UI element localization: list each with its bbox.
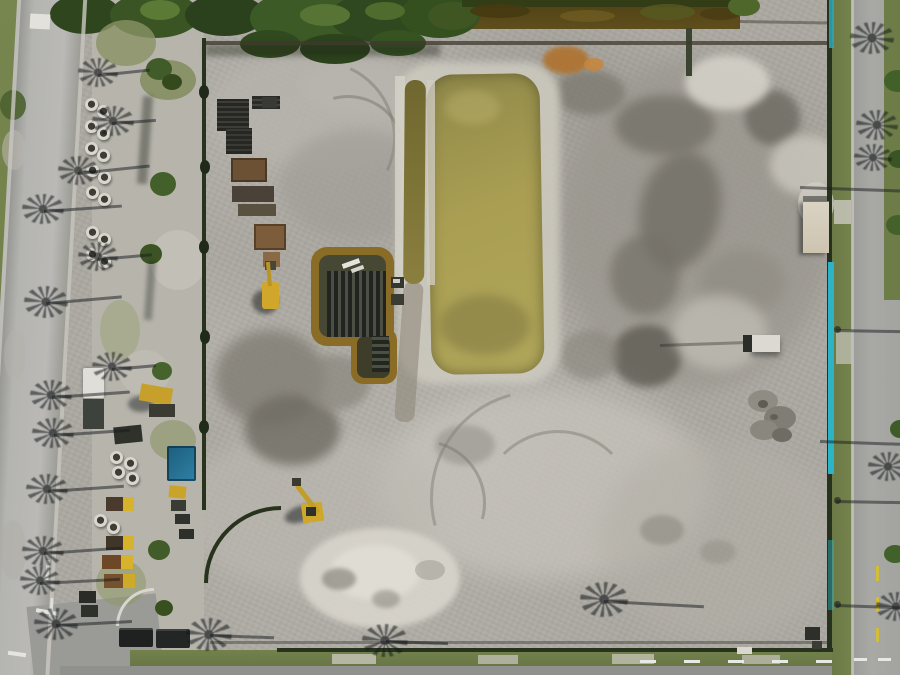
tree-canopy-highlight xyxy=(365,2,405,20)
silt-fence-cyan xyxy=(829,0,834,48)
parked-vehicle-top-left xyxy=(30,13,51,29)
concrete-pipe xyxy=(98,171,111,184)
sidewalk-patch xyxy=(332,654,376,664)
dirt-edge-line-top-right xyxy=(740,20,828,25)
concrete-pipe xyxy=(85,98,98,111)
dump-truck-cab xyxy=(123,536,134,550)
dump-truck-cab xyxy=(123,574,135,588)
concrete-pipe xyxy=(86,186,99,199)
channel-berm xyxy=(427,80,435,285)
road-dash xyxy=(640,660,656,663)
verge-sand-patch xyxy=(2,130,26,170)
pallet-stack xyxy=(232,186,274,202)
fence-shrub xyxy=(199,420,209,434)
yellow-center-dash xyxy=(876,628,879,642)
parked-truck-trailer xyxy=(83,399,104,429)
concrete-pipe xyxy=(94,514,107,527)
gravel-speckle xyxy=(758,400,768,408)
dump-truck-cab xyxy=(121,555,133,569)
strip-tree xyxy=(148,540,170,560)
pallet-stack xyxy=(238,204,276,216)
palm-shadow xyxy=(850,22,894,54)
foundation-formwork-small xyxy=(372,336,389,372)
site-top-boundary-line xyxy=(205,41,833,45)
palm-shadow xyxy=(868,452,900,481)
pallet-stack xyxy=(231,158,267,182)
equipment-dark xyxy=(171,500,186,511)
tree-canopy-highlight xyxy=(300,4,350,26)
road-dash xyxy=(878,658,891,661)
road-dash xyxy=(854,658,867,661)
dark-soil-patch xyxy=(555,70,625,115)
canal-algae-patch xyxy=(640,4,695,20)
sand-mound xyxy=(672,295,767,370)
bottom-road xyxy=(60,666,900,675)
stockpile-shadow-spot xyxy=(372,590,400,608)
excavator-bucket xyxy=(292,478,301,486)
dark-object-corner xyxy=(812,641,822,649)
fence-shrub xyxy=(200,160,210,174)
road-dash xyxy=(684,660,700,663)
equipment-dark xyxy=(81,605,98,617)
right-palm-canopy xyxy=(884,545,900,563)
yellow-center-dash xyxy=(876,566,879,581)
equipment-trailer-cab xyxy=(743,335,752,352)
trailer-roof-shade xyxy=(803,196,829,202)
fence-shrub xyxy=(199,85,209,99)
pole-top-shadow xyxy=(834,601,841,608)
sidewalk-patch xyxy=(478,655,518,664)
waste-dumpster xyxy=(119,628,153,647)
pond-surface-sheen xyxy=(445,90,500,125)
equipment-dark xyxy=(79,591,96,603)
dump-truck-cab xyxy=(123,497,134,511)
berm-machine-cab xyxy=(393,279,400,283)
equipment-dark xyxy=(175,514,190,524)
strip-tree xyxy=(150,172,176,196)
concrete-pipe xyxy=(85,142,98,155)
equipment-trailer xyxy=(751,335,780,352)
white-gate-panel xyxy=(737,647,752,654)
dump-truck-bed xyxy=(106,497,123,511)
sand-mound xyxy=(685,55,770,110)
tree-shadow-band xyxy=(205,44,440,56)
road-dash xyxy=(816,660,832,663)
pallet-stack xyxy=(254,224,286,250)
canal-light-patch xyxy=(560,10,615,22)
pond-deep-shade xyxy=(440,295,530,355)
palm-shadow xyxy=(856,110,898,140)
concrete-pipe xyxy=(112,466,125,479)
excavator-cab xyxy=(306,507,316,516)
concrete-pipe xyxy=(98,193,111,206)
fence-shrub xyxy=(199,240,209,254)
rust-stain xyxy=(584,58,604,71)
concrete-pipe xyxy=(97,149,110,162)
pole-top-shadow xyxy=(834,326,841,333)
canal-end-fence xyxy=(686,28,692,76)
site-office-trailer xyxy=(803,201,829,253)
canal-dark-patch xyxy=(470,4,530,18)
driveway-patch xyxy=(834,200,851,224)
road-dash xyxy=(728,660,744,663)
tire-track-arc xyxy=(480,430,636,586)
dump-truck-bed xyxy=(102,555,121,569)
gray-patch xyxy=(700,540,736,564)
grass-patch-top-right xyxy=(728,0,760,16)
strip-tree xyxy=(155,600,173,616)
concrete-pipe xyxy=(107,521,120,534)
small-loader xyxy=(168,485,186,499)
gravel-speckle xyxy=(770,414,778,420)
rebar-bundle-stack xyxy=(217,99,249,131)
strip-tree xyxy=(162,74,182,90)
rust-stain xyxy=(543,46,589,74)
road-dash xyxy=(772,660,788,663)
site-fence-west xyxy=(202,38,206,510)
dark-object-corner xyxy=(805,627,820,640)
dark-soil-patch xyxy=(615,95,715,155)
silt-fence-cyan xyxy=(828,448,834,466)
equipment-dark xyxy=(179,529,194,539)
stockpile-shadow-spot xyxy=(415,560,445,580)
dark-soil-patch xyxy=(610,235,680,315)
waste-dumpster xyxy=(156,629,190,648)
aerial-photo-construction-site xyxy=(0,0,900,675)
rebar-bundle-stack xyxy=(226,128,252,154)
driveway-patch xyxy=(836,330,852,364)
gray-patch xyxy=(640,515,684,545)
concrete-pipe xyxy=(86,226,99,239)
drainage-channel xyxy=(403,80,426,284)
berm-machine xyxy=(391,294,404,305)
concrete-pipe xyxy=(124,457,137,470)
material-crate xyxy=(262,97,277,108)
concrete-pipe xyxy=(126,472,139,485)
concrete-pipe xyxy=(110,451,123,464)
tracked-machine xyxy=(113,425,143,445)
attachment-dark xyxy=(149,404,175,417)
gravel-pile xyxy=(772,428,792,442)
tree-canopy-highlight xyxy=(140,0,180,20)
dark-soil-patch xyxy=(560,330,620,380)
blue-container xyxy=(167,446,196,481)
verge-sand-patch xyxy=(4,330,26,380)
foundation-formwork xyxy=(327,271,386,337)
mini-crane-body xyxy=(262,282,279,309)
right-road-edge-line xyxy=(851,0,854,675)
pole-top-shadow xyxy=(834,497,841,504)
silt-fence-cyan xyxy=(828,540,834,610)
fence-shrub xyxy=(200,330,210,344)
